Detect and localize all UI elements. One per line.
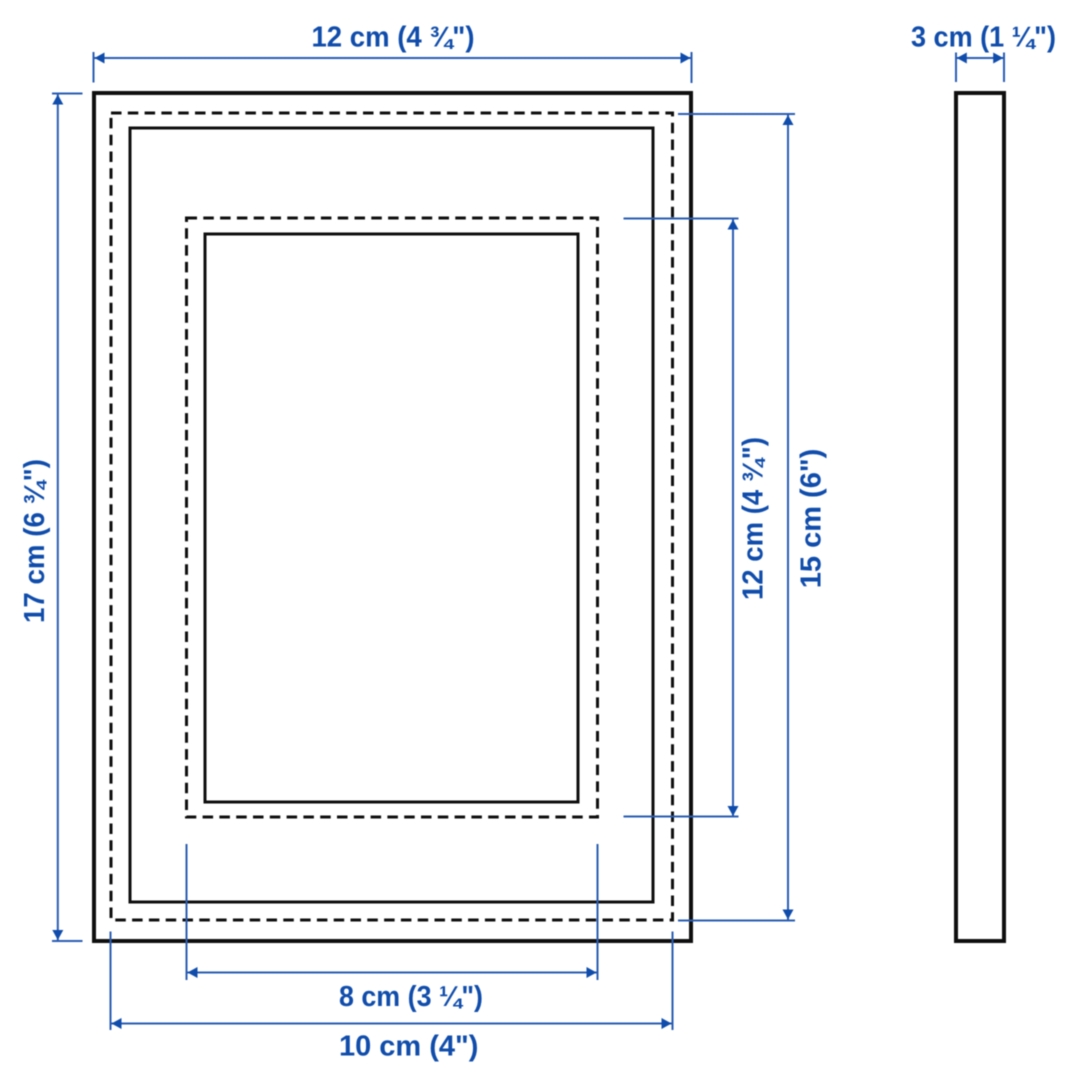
svg-text:8 cm (3 ¼"): 8 cm (3 ¼") [339, 981, 483, 1013]
svg-text:15 cm (6"): 15 cm (6") [796, 449, 828, 588]
svg-text:10 cm (4"): 10 cm (4") [339, 1031, 478, 1063]
svg-text:17 cm (6 ¾"): 17 cm (6 ¾") [19, 459, 51, 623]
svg-text:3 cm (1 ¼"): 3 cm (1 ¼") [911, 22, 1056, 54]
svg-text:12 cm (4 ¾"): 12 cm (4 ¾") [312, 22, 475, 54]
svg-text:12 cm (4 ¾"): 12 cm (4 ¾") [738, 437, 770, 600]
